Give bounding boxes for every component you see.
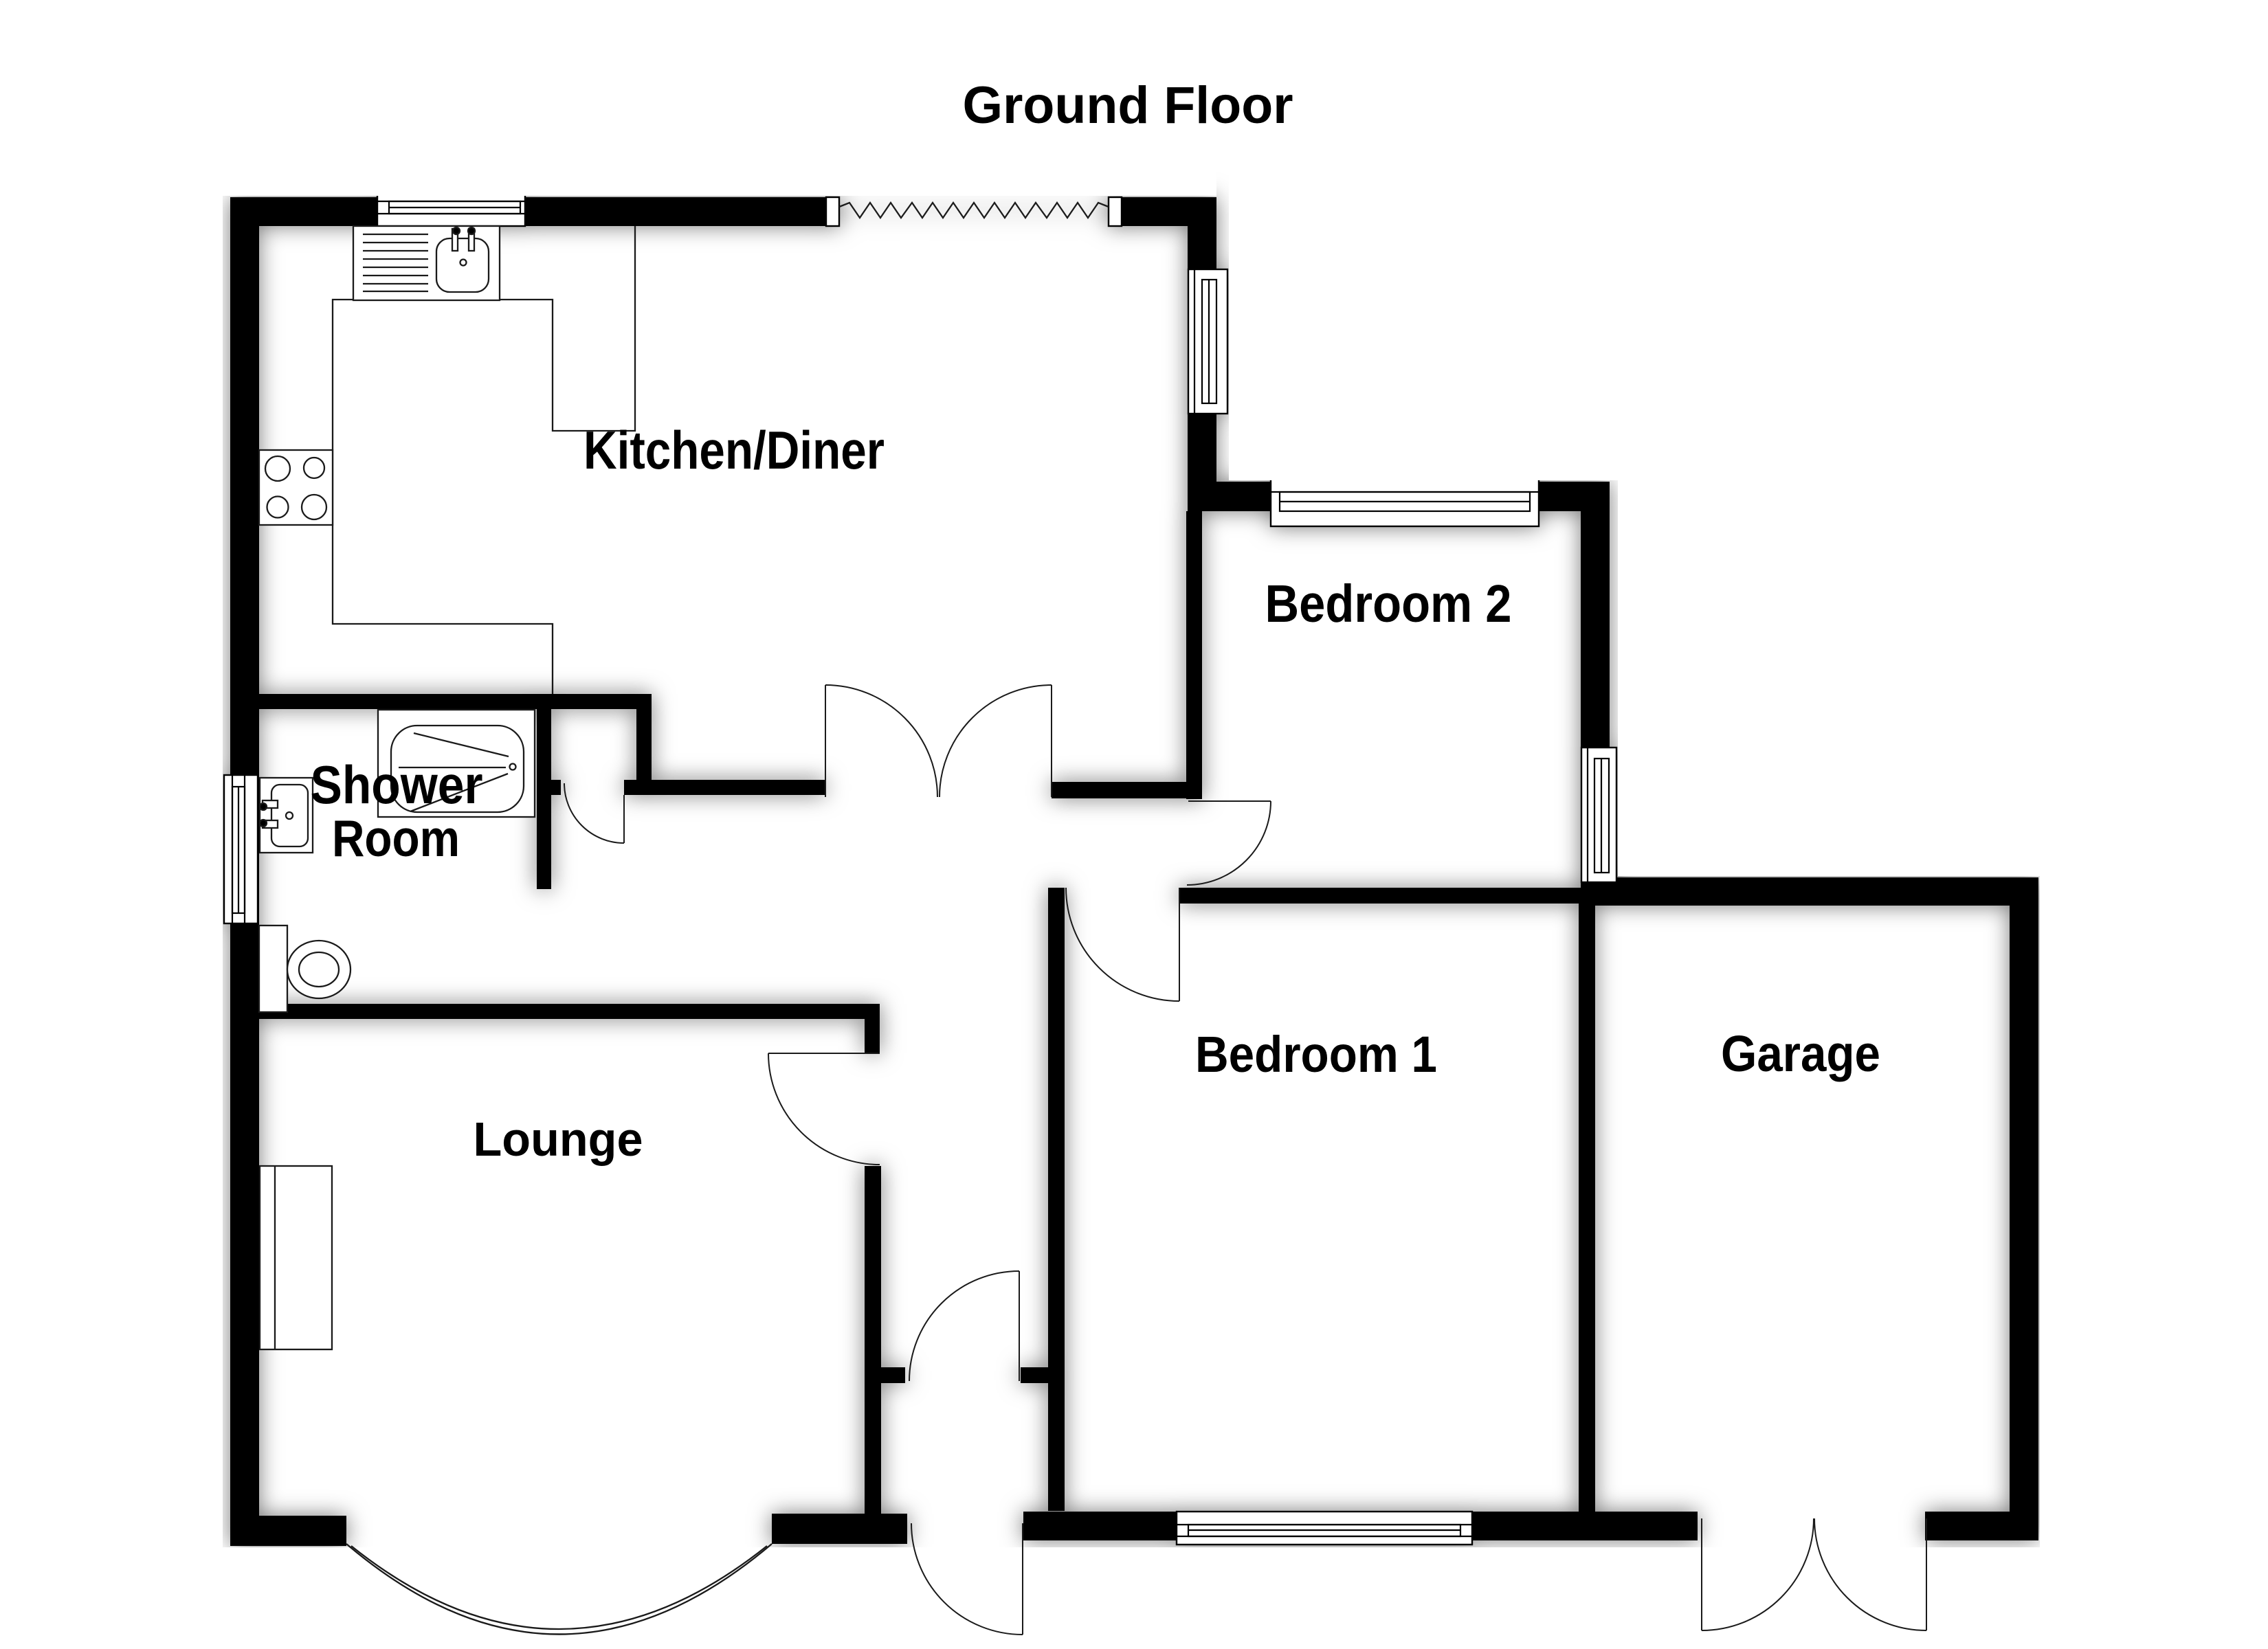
svg-text:Lounge: Lounge <box>474 1112 643 1166</box>
svg-text:Room: Room <box>332 809 460 867</box>
svg-text:Shower: Shower <box>311 754 483 815</box>
svg-text:Kitchen/Diner: Kitchen/Diner <box>583 420 885 480</box>
svg-text:Ground Floor: Ground Floor <box>963 76 1293 135</box>
svg-text:Garage: Garage <box>1721 1025 1880 1082</box>
svg-text:Bedroom 1: Bedroom 1 <box>1195 1026 1437 1083</box>
svg-text:Bedroom 2: Bedroom 2 <box>1265 574 1512 633</box>
